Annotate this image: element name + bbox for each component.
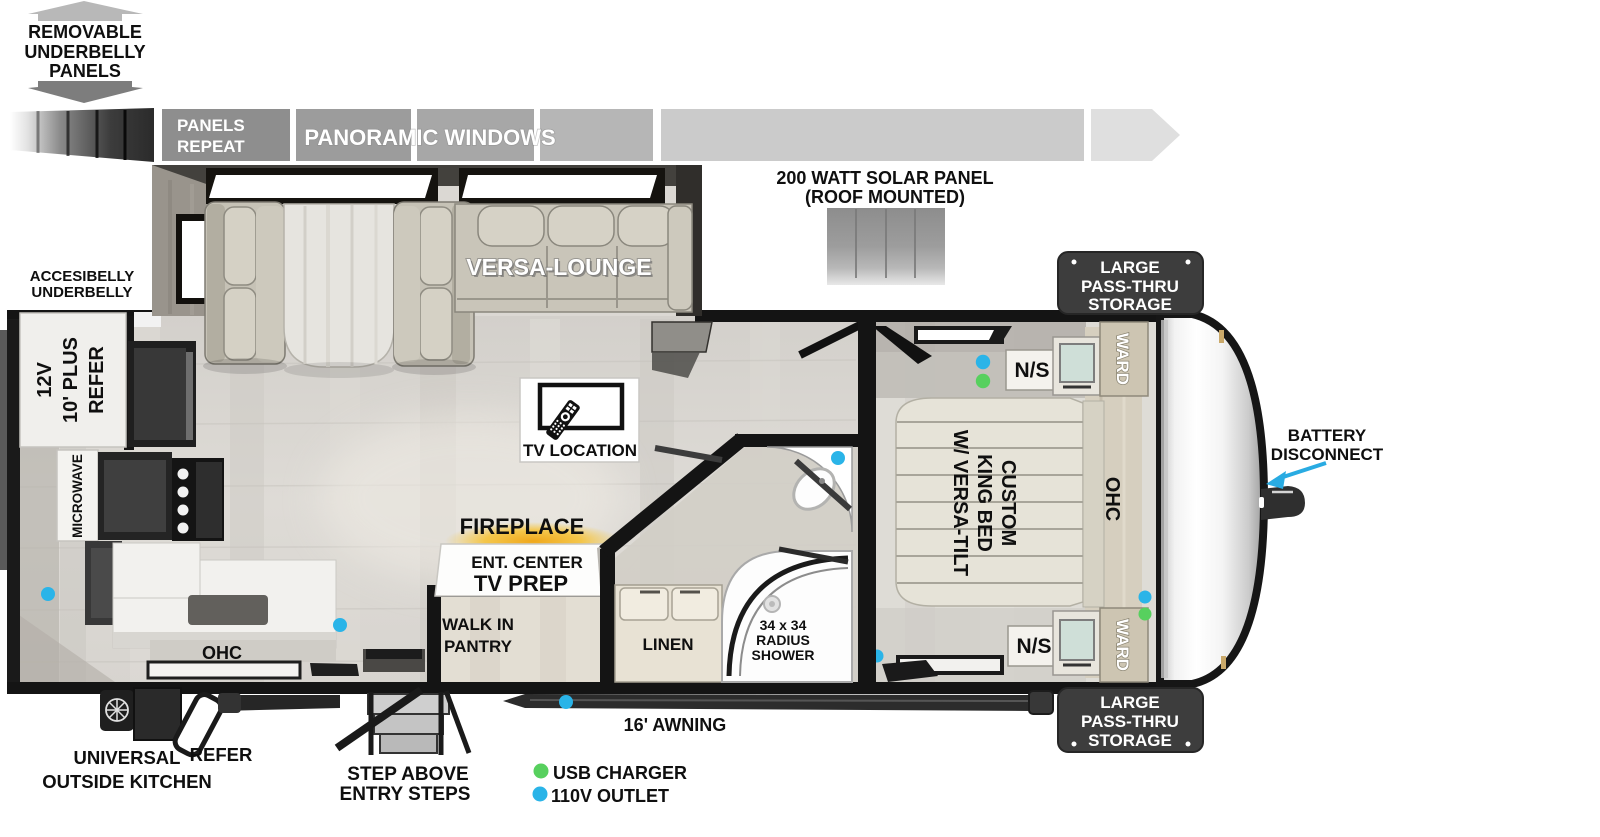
svg-text:SHOWER: SHOWER xyxy=(752,647,815,663)
svg-text:(ROOF MOUNTED): (ROOF MOUNTED) xyxy=(805,187,965,207)
svg-text:10' PLUS: 10' PLUS xyxy=(60,337,82,423)
svg-text:UNIVERSAL: UNIVERSAL xyxy=(74,747,181,768)
svg-text:PANELS: PANELS xyxy=(49,61,121,81)
svg-text:WARD: WARD xyxy=(1113,333,1132,385)
svg-text:W/ VERSA-TILT: W/ VERSA-TILT xyxy=(949,430,971,576)
svg-text:PANORAMIC WINDOWS: PANORAMIC WINDOWS xyxy=(304,125,555,150)
svg-text:LARGE: LARGE xyxy=(1100,258,1160,277)
svg-text:UNDERBELLY: UNDERBELLY xyxy=(31,284,132,301)
svg-text:ENT. CENTER: ENT. CENTER xyxy=(471,553,582,572)
svg-text:KING BED: KING BED xyxy=(973,454,995,552)
svg-text:VERSA-LOUNGE: VERSA-LOUNGE xyxy=(466,254,651,280)
svg-text:WALK IN: WALK IN xyxy=(442,615,514,634)
svg-text:STEP ABOVE: STEP ABOVE xyxy=(347,764,468,785)
svg-text:LINEN: LINEN xyxy=(643,635,694,654)
svg-text:REMOVABLE: REMOVABLE xyxy=(28,22,142,42)
svg-text:STORAGE: STORAGE xyxy=(1088,295,1172,314)
svg-text:FIREPLACE: FIREPLACE xyxy=(460,514,585,539)
svg-text:RADIUS: RADIUS xyxy=(756,632,810,648)
svg-text:PASS-THRU: PASS-THRU xyxy=(1081,712,1179,731)
svg-text:WARD: WARD xyxy=(1113,619,1132,671)
svg-text:OUTSIDE KITCHEN: OUTSIDE KITCHEN xyxy=(42,771,212,792)
svg-text:ACCESIBELLY: ACCESIBELLY xyxy=(30,268,134,285)
svg-text:OHC: OHC xyxy=(202,643,242,663)
svg-text:N/S: N/S xyxy=(1014,359,1049,382)
svg-text:PASS-THRU: PASS-THRU xyxy=(1081,277,1179,296)
svg-text:CUSTOM: CUSTOM xyxy=(997,460,1019,546)
svg-text:REFER: REFER xyxy=(86,346,108,414)
svg-text:REPEAT: REPEAT xyxy=(177,137,245,156)
svg-text:REFER: REFER xyxy=(190,744,253,765)
svg-text:MICROWAVE: MICROWAVE xyxy=(70,454,85,538)
svg-text:N/S: N/S xyxy=(1016,635,1051,658)
svg-text:DISCONNECT: DISCONNECT xyxy=(1271,445,1384,464)
svg-text:LARGE: LARGE xyxy=(1100,693,1160,712)
svg-text:USB CHARGER: USB CHARGER xyxy=(553,763,687,783)
svg-text:UNDERBELLY: UNDERBELLY xyxy=(24,42,145,62)
svg-text:STORAGE: STORAGE xyxy=(1088,731,1172,750)
svg-text:12V: 12V xyxy=(34,362,56,398)
svg-text:16' AWNING: 16' AWNING xyxy=(624,715,727,735)
svg-text:BATTERY: BATTERY xyxy=(1288,426,1367,445)
svg-text:ENTRY STEPS: ENTRY STEPS xyxy=(340,784,471,805)
svg-text:200 WATT SOLAR PANEL: 200 WATT SOLAR PANEL xyxy=(776,168,993,188)
svg-text:TV PREP: TV PREP xyxy=(474,571,568,596)
svg-text:34 x 34: 34 x 34 xyxy=(760,617,807,633)
svg-text:TV LOCATION: TV LOCATION xyxy=(523,441,637,460)
svg-text:110V OUTLET: 110V OUTLET xyxy=(551,786,669,806)
svg-text:PANTRY: PANTRY xyxy=(444,637,513,656)
svg-text:PANELS: PANELS xyxy=(177,116,245,135)
